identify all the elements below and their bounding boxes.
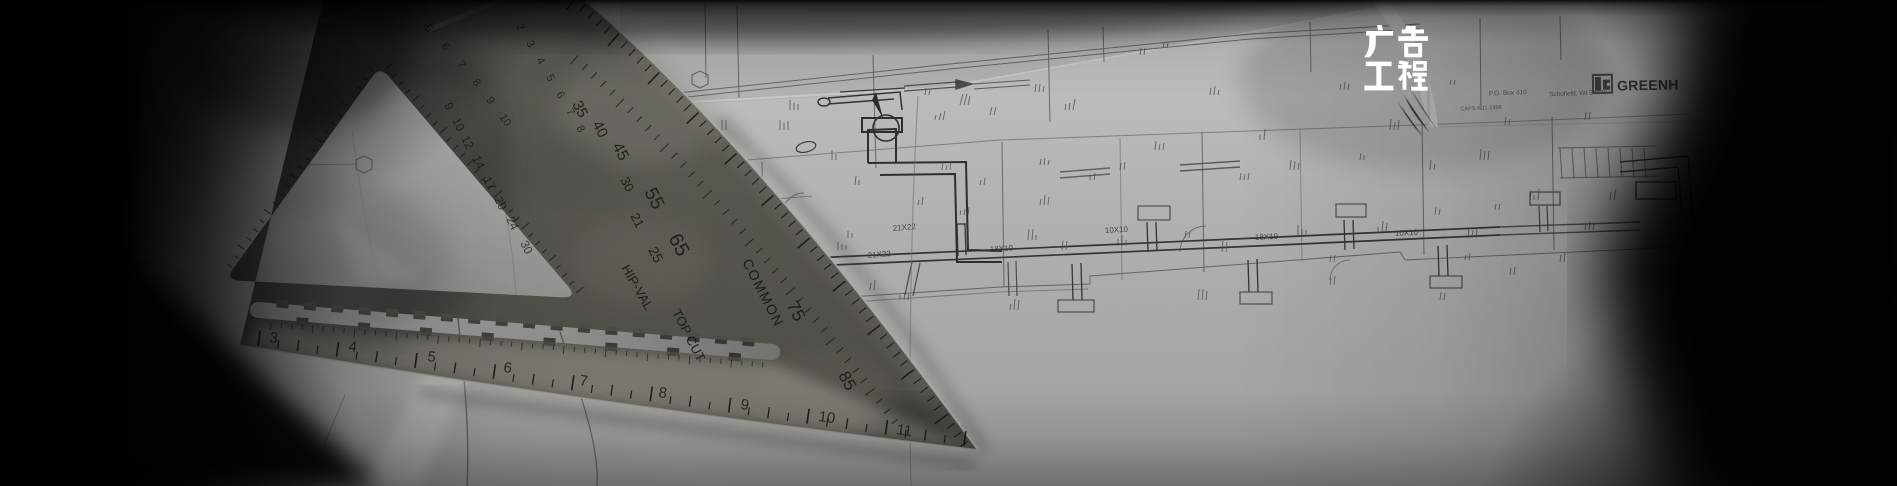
svg-text:10X10: 10X10 — [1105, 225, 1129, 235]
svg-text:18X10: 18X10 — [990, 243, 1014, 254]
